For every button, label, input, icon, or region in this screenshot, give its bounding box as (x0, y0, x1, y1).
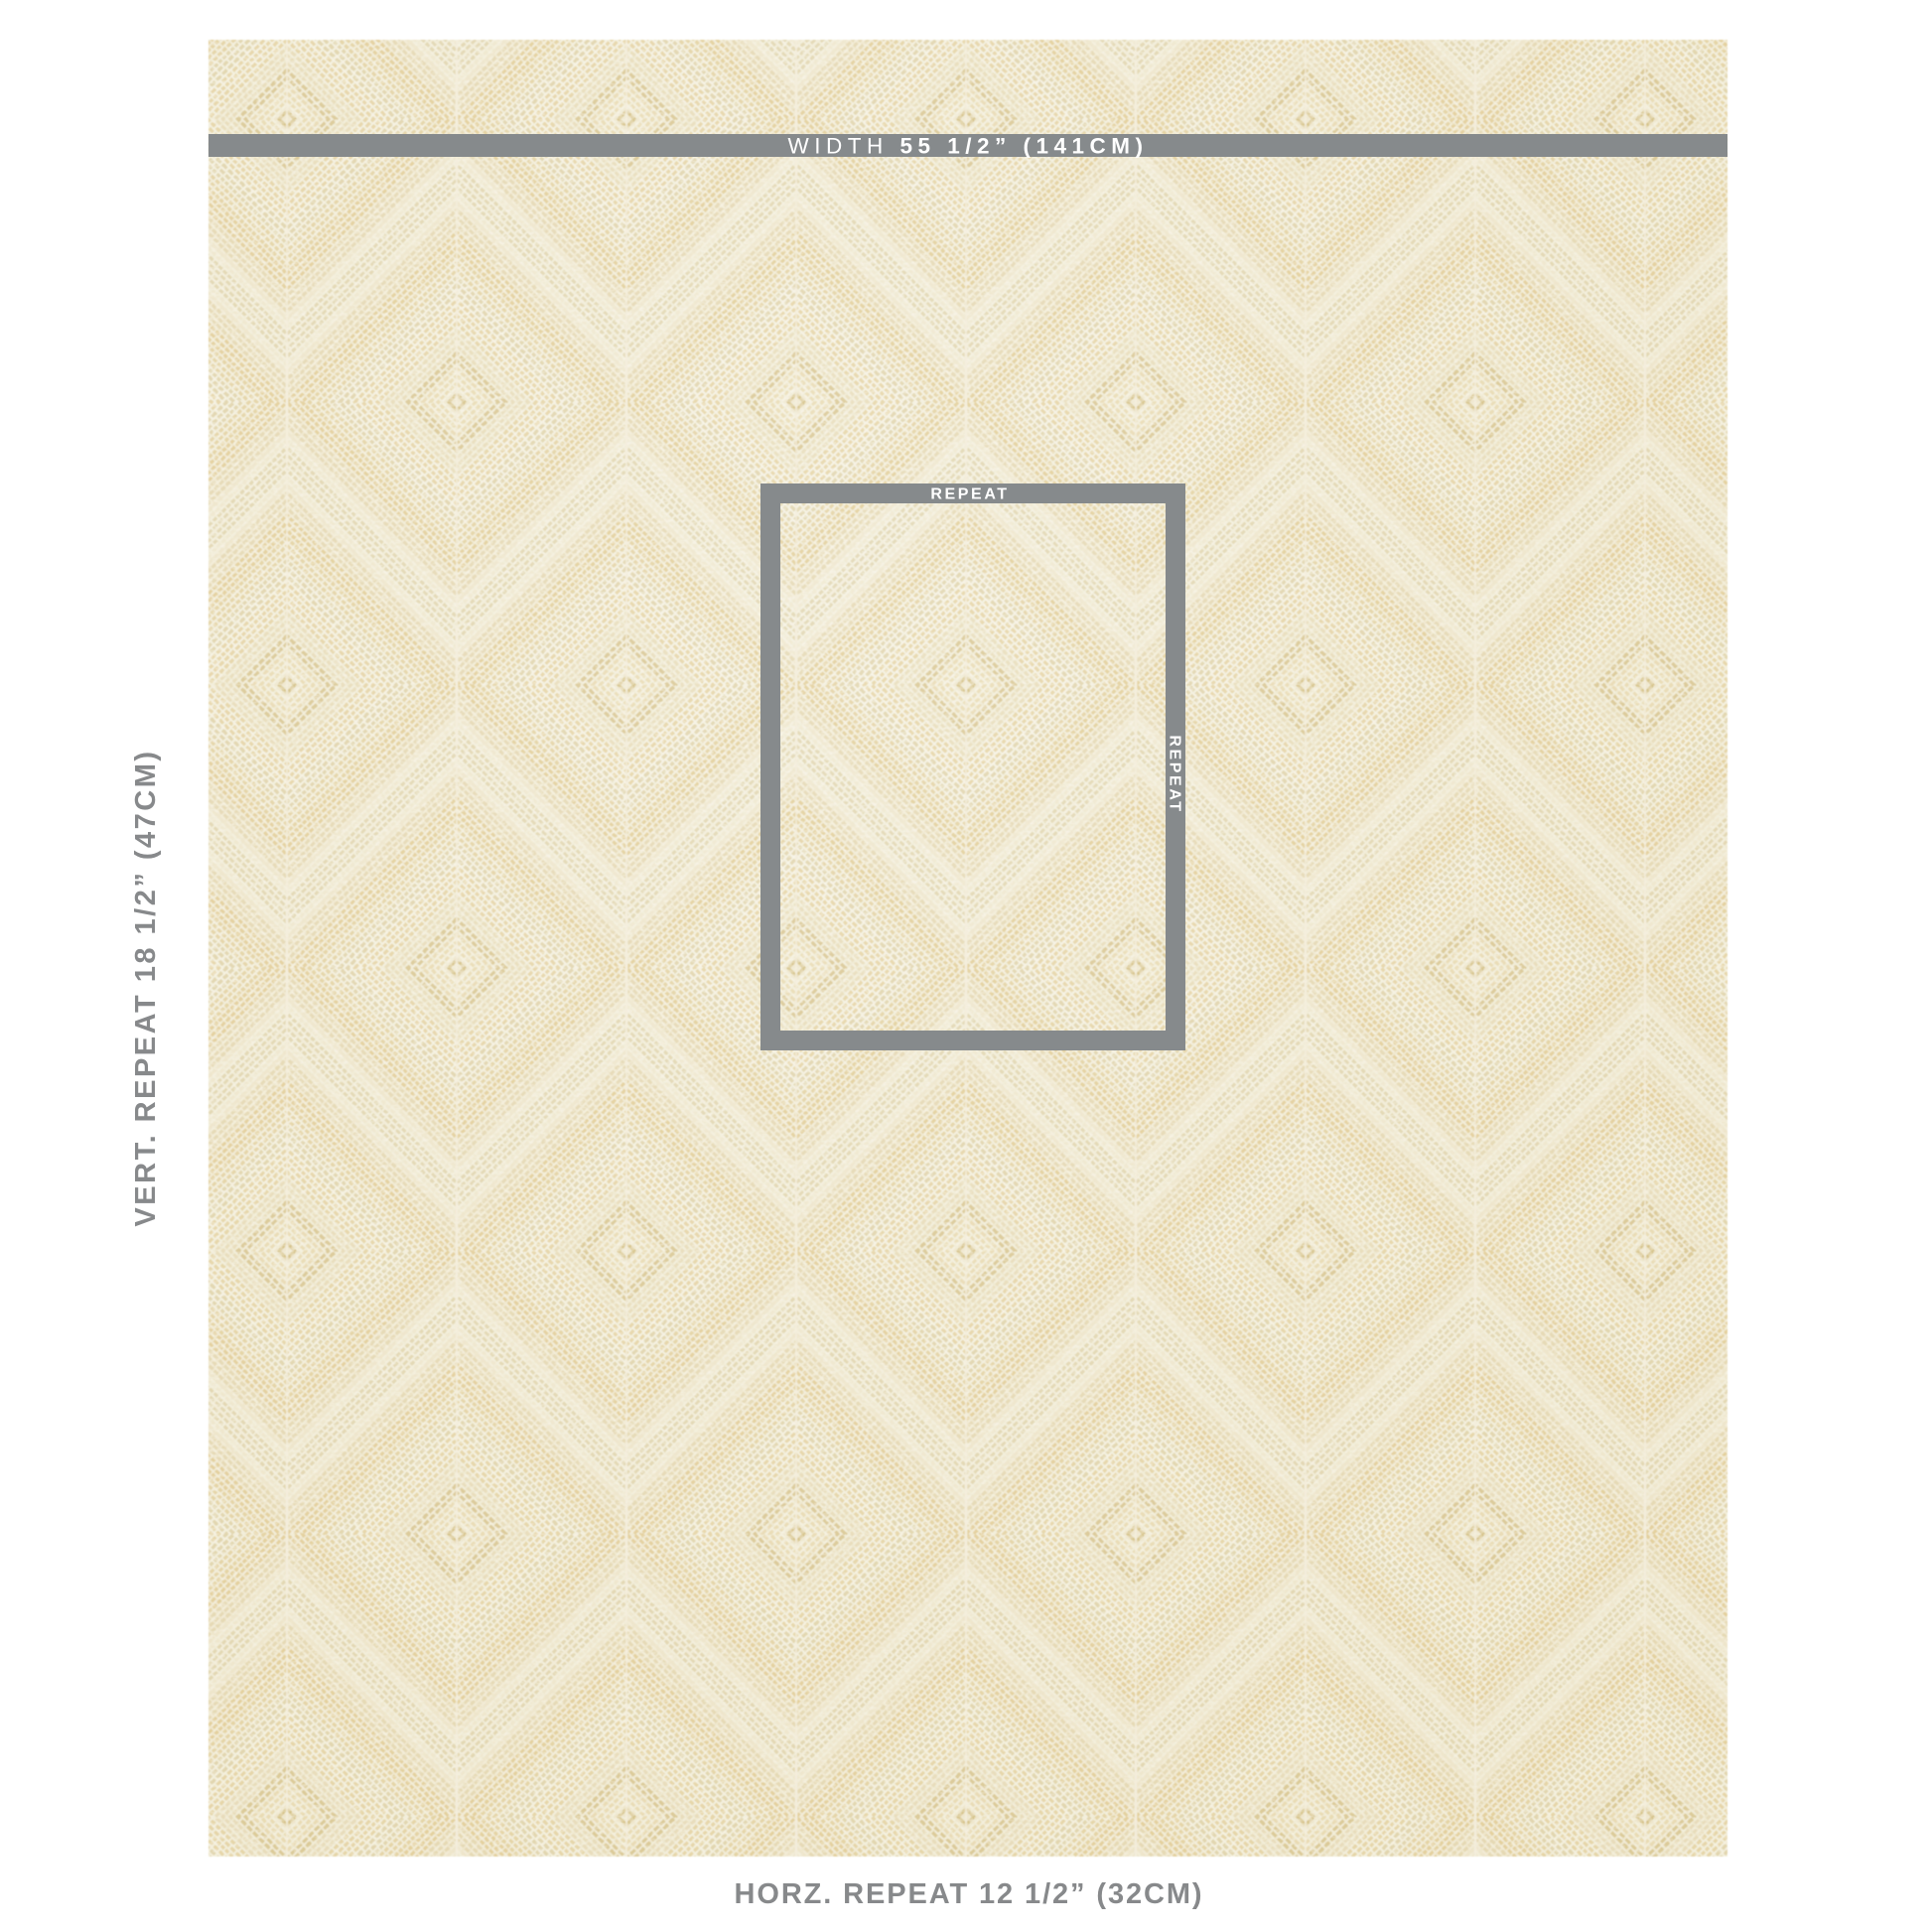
svg-text:WIDTH 55 1/2” (141CM): WIDTH 55 1/2” (141CM) (787, 134, 1148, 159)
svg-text:REPEAT: REPEAT (1167, 735, 1183, 813)
svg-text:VERT. REPEAT 18 1/2” (47CM): VERT. REPEAT 18 1/2” (47CM) (130, 749, 162, 1226)
svg-text:HORZ. REPEAT 12 1/2” (32CM): HORZ. REPEAT 12 1/2” (32CM) (735, 1878, 1204, 1910)
svg-text:REPEAT: REPEAT (930, 486, 1009, 503)
